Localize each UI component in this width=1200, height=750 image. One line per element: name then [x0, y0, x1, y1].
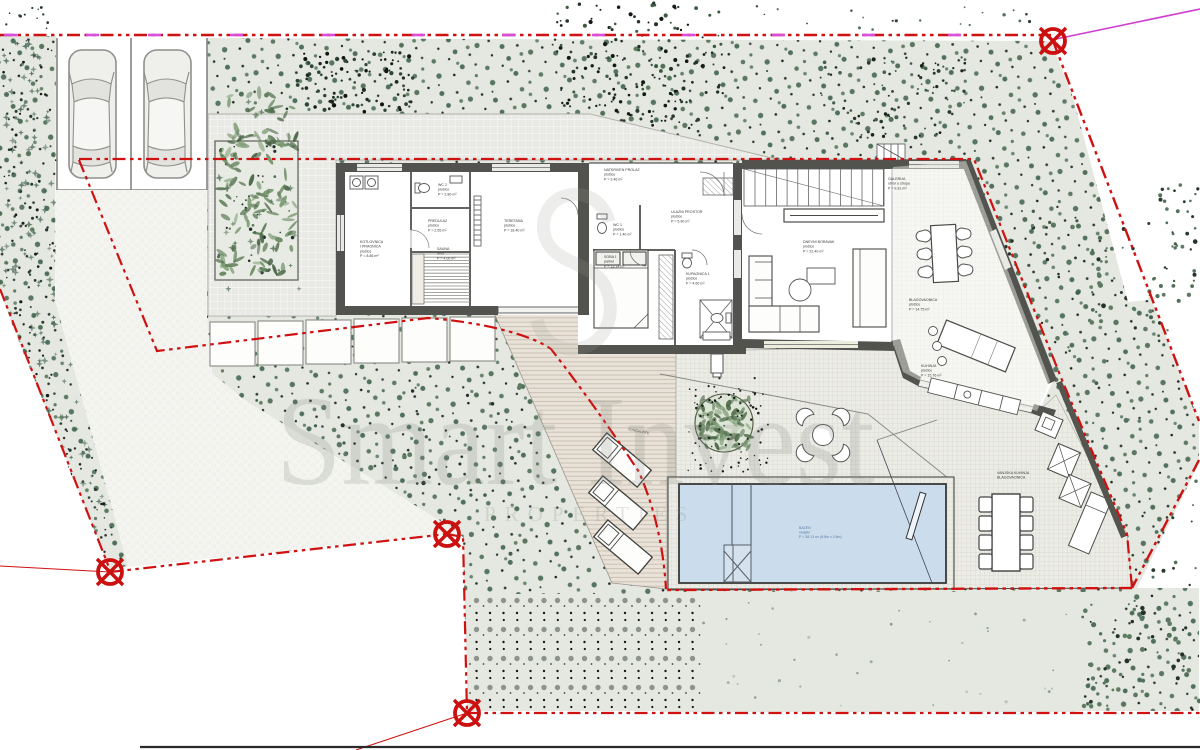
svg-text:Smart Invest: Smart Invest	[276, 370, 874, 513]
svg-text:VANJSKA KUHINJABLAGOVAONICA: VANJSKA KUHINJABLAGOVAONICA	[997, 471, 1030, 480]
svg-text:PROPERTIES: PROPERTIES	[484, 502, 696, 526]
